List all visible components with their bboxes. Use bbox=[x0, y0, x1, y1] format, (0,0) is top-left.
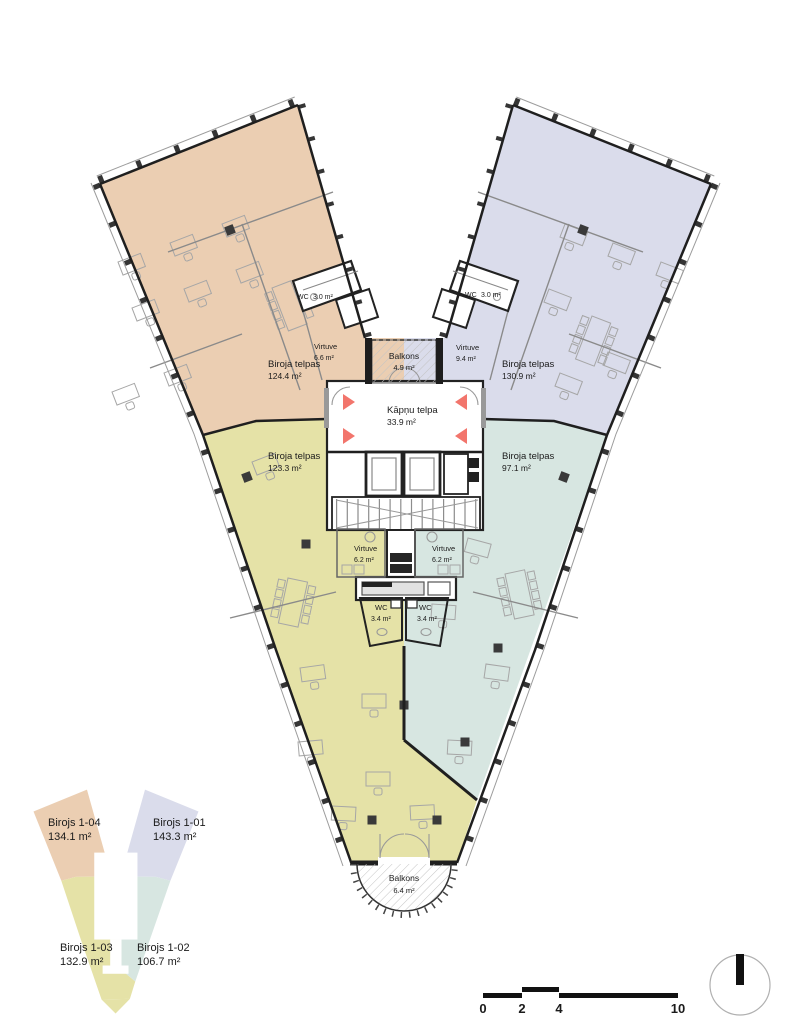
label-kitchen-2: Virtuve bbox=[456, 343, 479, 352]
label-wc-4-area: 3.4 m² bbox=[417, 616, 438, 623]
label-kitchen-4-area: 6.2 m² bbox=[432, 557, 453, 564]
legend-item-1-03: Birojs 1-03 bbox=[60, 942, 113, 954]
legend-item-1-03-area: 132.9 m² bbox=[60, 956, 104, 968]
label-kitchen-3: Virtuve bbox=[354, 544, 377, 553]
scale-tick-0: 0 bbox=[479, 1001, 486, 1016]
balcony-top bbox=[365, 338, 443, 384]
scale-tick-10: 10 bbox=[671, 1001, 685, 1016]
label-wc-2: WC bbox=[465, 292, 477, 299]
elevator-shafts bbox=[366, 452, 479, 496]
label-office-1-02-area: 97.1 m² bbox=[502, 463, 531, 473]
stair-window-left bbox=[324, 388, 329, 428]
legend-key-map: Birojs 1-04 134.1 m² Birojs 1-01 143.3 m… bbox=[34, 790, 206, 1014]
label-wc-2-area: 3.0 m² bbox=[481, 292, 502, 299]
legend-zone-tip bbox=[102, 999, 130, 1014]
label-office-1-04-area: 124.4 m² bbox=[268, 371, 302, 381]
label-stairwell: Kāpņu telpa bbox=[387, 405, 438, 416]
north-arrow-icon bbox=[710, 954, 770, 1015]
legend-item-1-02: Birojs 1-02 bbox=[137, 942, 190, 954]
label-kitchen-4: Virtuve bbox=[432, 544, 455, 553]
label-kitchen-1-area: 6.6 m² bbox=[314, 355, 335, 362]
label-office-1-01: Biroja telpas bbox=[502, 359, 555, 370]
label-office-1-01-area: 130.9 m² bbox=[502, 371, 536, 381]
label-balcony-top-area: 4.9 m² bbox=[393, 363, 415, 372]
label-kitchen-1: Virtuve bbox=[314, 342, 337, 351]
legend-item-1-01-area: 143.3 m² bbox=[153, 831, 197, 843]
legend-item-1-01: Birojs 1-01 bbox=[153, 817, 206, 829]
label-kitchen-2-area: 9.4 m² bbox=[456, 356, 477, 363]
label-office-1-03: Biroja telpas bbox=[268, 451, 321, 462]
label-office-1-03-area: 123.3 m² bbox=[268, 463, 302, 473]
label-wc-3: WC bbox=[375, 603, 388, 612]
floor-plan-sheet: Biroja telpas 124.4 m² Biroja telpas 130… bbox=[0, 0, 810, 1024]
label-balcony-bottom: Balkons bbox=[389, 873, 419, 883]
label-wc-1: WC bbox=[297, 294, 309, 301]
label-balcony-bottom-area: 6.4 m² bbox=[393, 886, 415, 895]
scale-tick-4: 4 bbox=[555, 1001, 563, 1016]
legend-item-1-04: Birojs 1-04 bbox=[48, 817, 101, 829]
label-kitchen-3-area: 6.2 m² bbox=[354, 557, 375, 564]
stair-flight bbox=[332, 497, 480, 530]
scale-bar: 0 2 4 10 bbox=[479, 987, 685, 1016]
floor-plan-drawing: Biroja telpas 124.4 m² Biroja telpas 130… bbox=[0, 0, 810, 1024]
label-office-1-02: Biroja telpas bbox=[502, 451, 555, 462]
label-wc-4: WC bbox=[419, 603, 432, 612]
legend-item-1-02-area: 106.7 m² bbox=[137, 956, 181, 968]
label-balcony-top: Balkons bbox=[389, 351, 419, 361]
legend-item-1-04-area: 134.1 m² bbox=[48, 831, 92, 843]
label-wc-1-area: 3.0 m² bbox=[313, 294, 334, 301]
label-stairwell-area: 33.9 m² bbox=[387, 417, 416, 427]
stair-window-right bbox=[481, 388, 486, 428]
label-wc-3-area: 3.4 m² bbox=[371, 616, 392, 623]
scale-tick-2: 2 bbox=[518, 1001, 525, 1016]
label-office-1-04: Biroja telpas bbox=[268, 359, 321, 370]
